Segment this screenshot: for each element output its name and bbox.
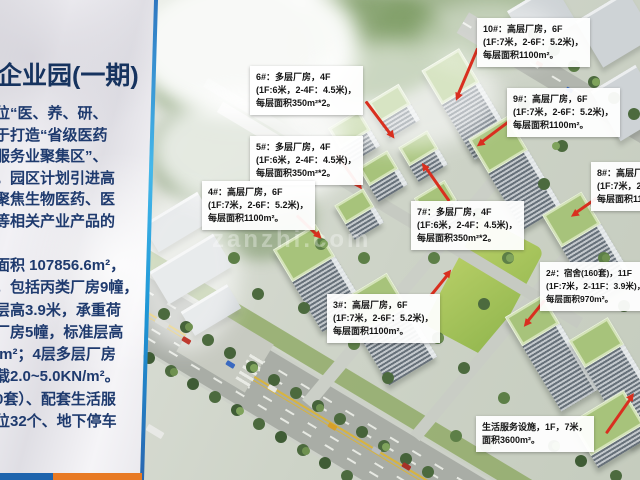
text-line: 面积 107856.6m²， bbox=[0, 255, 138, 277]
text-line: 服务业聚集区”、 bbox=[0, 146, 115, 168]
text-line: 聚焦生物医药、医 bbox=[0, 189, 115, 211]
callout-building-9: 9#：高层厂房，6F (1F:7米，2-6F：5.2米)， 每层面积1100m²… bbox=[507, 88, 620, 137]
callout-text: 每层面积350m²*2。 bbox=[256, 97, 357, 110]
callout-text: 8#：高层厂房， bbox=[597, 167, 640, 180]
text-line: 位“医、养、研、 bbox=[0, 103, 115, 125]
callout-text: 每层面积350m²*2。 bbox=[417, 232, 518, 245]
intro-paragraph: 位“医、养、研、 于打造“省级医药 服务业聚集区”、 。园区计划引进高 聚焦生物… bbox=[0, 103, 115, 233]
text-line: ，包括丙类厂房9幢， bbox=[0, 277, 138, 299]
callout-building-7: 7#：多层厂房，4F (1F:6米，2-4F：4.5米)， 每层面积350m²*… bbox=[411, 201, 524, 250]
page-title: 企业园(一期) bbox=[0, 56, 139, 92]
sidebar-panel: 企业园(一期) 位“医、养、研、 于打造“省级医药 服务业聚集区”、 。园区计划… bbox=[0, 0, 160, 480]
slide: zanzhi.com 10#：高层厂房，6F (1F:7米，2-6F：5.2米)… bbox=[0, 0, 640, 480]
callout-building-5: 5#：多层厂房，4F (1F:6米，2-4F：4.5米)， 每层面积350m²*… bbox=[250, 136, 363, 185]
callout-text: (1F:7米，2-6 bbox=[597, 180, 640, 193]
callout-text: 每层面积350m²*2。 bbox=[256, 167, 357, 180]
callout-text: (1F:6米，2-4F：4.5米)， bbox=[256, 154, 357, 167]
callout-text: 每层面积1100 bbox=[597, 193, 640, 206]
callout-text: 每层面积970m²。 bbox=[546, 293, 640, 306]
callout-text: 3#：高层厂房，6F bbox=[333, 299, 434, 312]
callout-text: 每层面积1100m²。 bbox=[483, 49, 584, 62]
callout-text: (1F:7米，2-11F：3.9米)， bbox=[546, 280, 640, 293]
callout-text: (1F:7米，2-6F：5.2米)， bbox=[333, 312, 434, 325]
text-line: 层高3.9米，承重荷 bbox=[0, 300, 138, 322]
accent-bar-orange bbox=[53, 473, 142, 480]
specs-paragraph: 面积 107856.6m²， ，包括丙类厂房9幢， 层高3.9米，承重荷 厂房5… bbox=[0, 255, 138, 433]
text-line: 厂房5幢，标准层高 bbox=[0, 322, 138, 344]
callout-text: 每层面积1100m²。 bbox=[208, 212, 309, 225]
callout-text: 每层面积1100m²。 bbox=[333, 325, 434, 338]
callout-text: (1F:7米，2-6F：5.2米)， bbox=[208, 199, 309, 212]
callout-service-facility: 生活服务设施，1F，7米， 面积3600m²。 bbox=[476, 416, 594, 452]
text-line: 0套）、配套生活服 bbox=[0, 389, 138, 411]
callout-text: 7#：多层厂房，4F bbox=[417, 206, 518, 219]
callout-building-3: 3#：高层厂房，6F (1F:7米，2-6F：5.2米)， 每层面积1100m²… bbox=[327, 294, 440, 343]
callout-text: 4#：高层厂房，6F bbox=[208, 186, 309, 199]
text-line: 载2.0~5.0KN/m²。 bbox=[0, 366, 138, 388]
callout-text: (1F:7米，2-6F：5.2米)， bbox=[483, 36, 584, 49]
callout-text: 10#：高层厂房，6F bbox=[483, 23, 584, 36]
text-line: 。园区计划引进高 bbox=[0, 168, 115, 190]
callout-text: (1F:6米，2-4F：4.5米)， bbox=[256, 84, 357, 97]
callout-text: (1F:6米，2-4F：4.5米)， bbox=[417, 219, 518, 232]
callout-text: 面积3600m²。 bbox=[482, 434, 588, 447]
callout-text: (1F:7米，2-6F：5.2米)， bbox=[513, 106, 614, 119]
callout-text: 9#：高层厂房，6F bbox=[513, 93, 614, 106]
callout-building-4: 4#：高层厂房，6F (1F:7米，2-6F：5.2米)， 每层面积1100m²… bbox=[202, 181, 315, 230]
callout-text: 生活服务设施，1F，7米， bbox=[482, 421, 588, 434]
callout-text: 每层面积1100m²。 bbox=[513, 119, 614, 132]
callout-building-6: 6#：多层厂房，4F (1F:6米，2-4F：4.5米)， 每层面积350m²*… bbox=[250, 66, 363, 115]
callout-text: 2#：宿舍(160套)，11F bbox=[546, 267, 640, 280]
callout-building-2: 2#：宿舍(160套)，11F (1F:7米，2-11F：3.9米)， 每层面积… bbox=[540, 262, 640, 311]
callout-building-10: 10#：高层厂房，6F (1F:7米，2-6F：5.2米)， 每层面积1100m… bbox=[477, 18, 590, 67]
accent-bar-blue bbox=[0, 473, 53, 480]
text-line: 位32个、地下停车 bbox=[0, 411, 138, 433]
callout-text: 5#：多层厂房，4F bbox=[256, 141, 357, 154]
callout-text: 6#：多层厂房，4F bbox=[256, 71, 357, 84]
text-line: /m²；4层多层厂房 bbox=[0, 344, 138, 366]
text-line: 于打造“省级医药 bbox=[0, 125, 115, 147]
callout-building-8: 8#：高层厂房， (1F:7米，2-6 每层面积1100 bbox=[591, 162, 640, 211]
watermark: zanzhi.com bbox=[212, 226, 371, 254]
bus bbox=[145, 424, 164, 439]
text-line: 等相关产业产品的 bbox=[0, 211, 115, 233]
